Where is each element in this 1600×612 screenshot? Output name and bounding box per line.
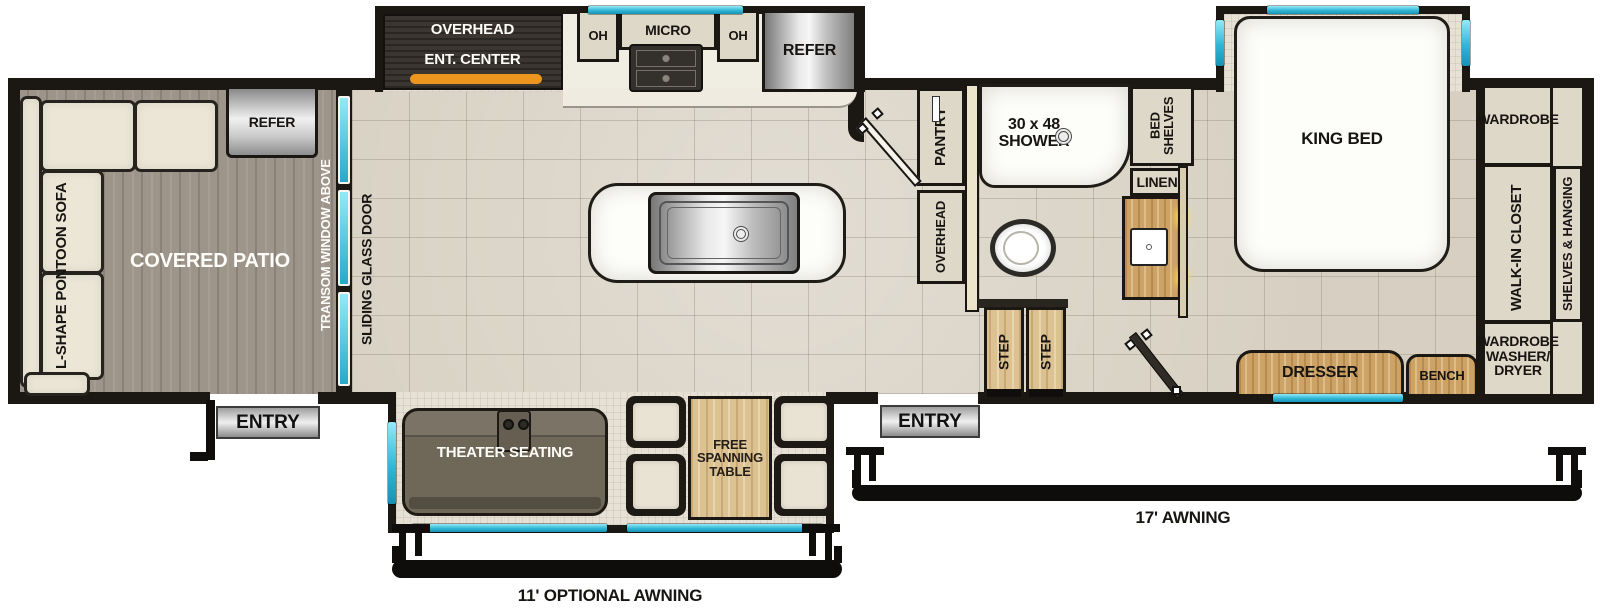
oh-cabinet-right: OH xyxy=(717,10,759,62)
window-strip xyxy=(388,422,396,504)
stove-grate xyxy=(636,70,696,87)
door-latch xyxy=(1172,386,1181,395)
wardrobe-label: WARDROBE xyxy=(1486,108,1550,130)
sink-basin-inner xyxy=(667,207,781,259)
cupholder xyxy=(518,419,529,430)
chair-cushion xyxy=(781,403,827,441)
main-bottom-wall-b xyxy=(834,392,878,404)
main-top-wall-a xyxy=(348,78,388,90)
pontoon-sofa-seat xyxy=(40,100,136,172)
pontoon-sofa-back xyxy=(20,96,42,388)
window-strip xyxy=(412,524,607,532)
vanity-wall xyxy=(1178,166,1188,318)
awning-rear-label: 11' OPTIONAL AWNING xyxy=(460,586,760,606)
patio-refrigerator: REFER xyxy=(226,86,318,158)
theater-base xyxy=(409,497,601,509)
main-entry-label: ENTRY xyxy=(880,405,980,438)
shower-label: 30 x 48 SHOWER xyxy=(975,112,1093,156)
awning-support-cap xyxy=(846,447,884,455)
patio-left-wall xyxy=(8,78,20,404)
awning-support-leg xyxy=(415,532,422,556)
ent-center-label: ENT. CENTER xyxy=(390,50,555,70)
dinette-chair xyxy=(774,454,834,516)
awning-front-bar xyxy=(852,485,1582,501)
toilet xyxy=(990,219,1056,277)
floorplan-canvas: TRANSOM WINDOW ABOVE SLIDING GLASS DOOR … xyxy=(0,0,1600,612)
pantry-cabinet: PANTRY xyxy=(917,88,965,186)
refrigerator: REFER xyxy=(762,10,857,92)
awning-support-leg xyxy=(1556,455,1563,481)
bed-shelves-cabinet: BED SHELVES xyxy=(1130,86,1194,166)
closet-divider xyxy=(1484,163,1550,167)
bench: BENCH xyxy=(1406,354,1478,397)
window-strip xyxy=(627,524,823,532)
pontoon-sofa-label: L-SHAPE PONTOON SOFA xyxy=(47,168,77,383)
cupholder xyxy=(503,419,514,430)
vanity-drain xyxy=(1146,244,1152,250)
theater-label: THEATER SEATING xyxy=(405,444,605,462)
awning-support-leg xyxy=(869,455,876,481)
linen-cabinet: LINEN xyxy=(1130,168,1184,196)
awning-support-leg xyxy=(809,532,816,556)
awning-support-cap xyxy=(392,524,430,532)
chair-cushion xyxy=(633,461,679,509)
sliding-glass-door xyxy=(338,190,350,286)
shelves-hanging-cabinet: SHELVES & HANGING xyxy=(1553,166,1583,322)
chair-cushion xyxy=(781,461,827,509)
dinette-chair xyxy=(774,396,834,448)
toilet-seat xyxy=(1003,231,1039,265)
island-sink xyxy=(648,192,800,274)
window-strip xyxy=(1462,20,1470,66)
oh-cabinet-left: OH xyxy=(577,10,619,62)
window-strip xyxy=(1273,394,1403,402)
dinette-chair xyxy=(626,454,686,516)
walk-in-closet-label: WALK-IN CLOSET xyxy=(1502,175,1532,320)
window-strip xyxy=(1216,20,1224,66)
dresser: DRESSER xyxy=(1236,350,1404,397)
awning-support-cap xyxy=(1548,447,1586,455)
stove-grate xyxy=(636,50,696,67)
vanity-sink xyxy=(1130,228,1168,266)
window-strip xyxy=(588,6,743,14)
awning-support-leg xyxy=(399,532,406,562)
washer-dryer-label: WARDROBE WASHER/ DRYER xyxy=(1484,324,1552,388)
awning-support-cap xyxy=(802,524,840,532)
king-bed-label: KING BED xyxy=(1234,128,1450,150)
step-base xyxy=(987,389,1021,397)
step-base xyxy=(1029,389,1063,397)
dinette-chair xyxy=(626,396,686,448)
awning-support-leg xyxy=(825,532,832,562)
accent-strip xyxy=(410,74,542,84)
sliding-door-label: SLIDING GLASS DOOR xyxy=(355,162,379,377)
dinette-table: FREE SPANNING TABLE xyxy=(688,396,772,520)
chair-cushion xyxy=(633,403,679,441)
cooktop-stove xyxy=(629,44,703,92)
patio-rail-foot xyxy=(190,452,208,461)
transom-window-label: TRANSOM WINDOW ABOVE xyxy=(316,148,336,343)
bath-overhead-cabinet: OVERHEAD xyxy=(917,190,965,284)
sink-drain xyxy=(733,226,749,242)
main-bottom-wall-a xyxy=(348,392,388,404)
awning-front-label: 17' AWNING xyxy=(1053,508,1313,528)
awning-rear-bar xyxy=(392,560,842,578)
patio-rail xyxy=(206,400,215,460)
sliding-glass-door xyxy=(338,96,350,184)
pontoon-sofa-seat xyxy=(134,100,218,172)
window-strip xyxy=(1267,6,1419,14)
step-left: STEP xyxy=(984,307,1024,397)
pantry-door-stub xyxy=(932,96,940,122)
patio-entry-label: ENTRY xyxy=(216,406,320,439)
overhead-label: OVERHEAD xyxy=(390,20,555,40)
shower-drain xyxy=(1055,128,1072,145)
covered-patio-label: COVERED PATIO xyxy=(90,248,330,274)
sliding-glass-door xyxy=(338,292,350,386)
step-right: STEP xyxy=(1026,307,1066,397)
main-right-wall xyxy=(1582,78,1594,404)
